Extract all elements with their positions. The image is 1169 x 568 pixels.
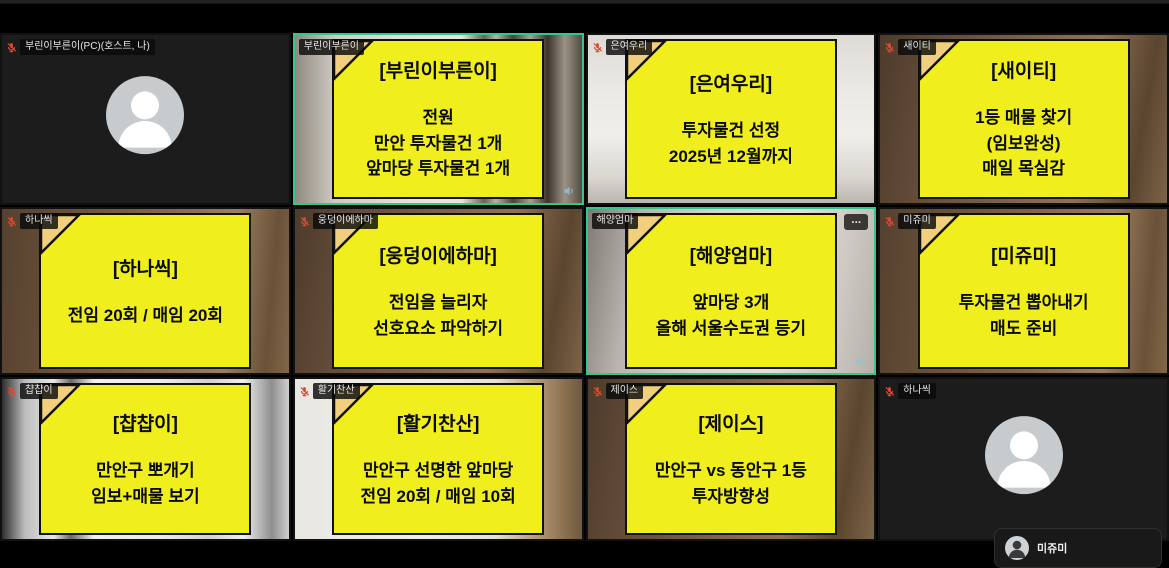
name-label: 챱챱이 (6, 383, 58, 399)
participant-name: 새이티 (898, 39, 936, 55)
note-title: [웅덩이에하마] (379, 241, 497, 268)
participant-tile[interactable]: [부린이부른이] 전원 만안 투자물건 1개 앞마당 투자물건 1개 부린이부른… (293, 33, 584, 205)
avatar (985, 416, 1063, 494)
muted-mic-icon (299, 386, 310, 397)
participant-tile[interactable]: [챱챱이] 만안구 뽀개기 임보+매물 보기 챱챱이 (0, 377, 291, 541)
muted-mic-icon (6, 42, 17, 53)
muted-mic-icon (6, 216, 17, 227)
name-label: 해양엄마 (592, 213, 639, 229)
participant-name: 웅덩이에하마 (313, 213, 378, 229)
avatar (106, 76, 184, 154)
window-top-strip (0, 0, 1169, 4)
muted-mic-icon (592, 386, 603, 397)
participant-name: 챱챱이 (20, 383, 58, 399)
participant-name: 하나씩 (20, 213, 58, 229)
note-title: [하나씩] (113, 254, 178, 281)
participant-tile[interactable]: [해양엄마] 앞마당 3개 올해 서울수도권 등기 해양엄마 ... (586, 207, 877, 375)
note-title: [은여우리] (690, 69, 773, 96)
name-label: 하나씩 (884, 383, 936, 399)
name-label: 부린이부른이(PC)(호스트, 나) (6, 39, 155, 55)
muted-mic-icon (884, 216, 895, 227)
sticky-note: [하나씩] 전임 20회 / 매임 20회 (39, 213, 251, 369)
note-title: [제이스] (698, 409, 763, 436)
participant-tile[interactable]: [활기찬산] 만안구 선명한 앞마당 전임 20회 / 매임 10회 활기찬산 (293, 377, 584, 541)
sticky-note: [활기찬산] 만안구 선명한 앞마당 전임 20회 / 매임 10회 (332, 383, 544, 535)
name-label: 새이티 (884, 39, 936, 55)
speaker-audio-icon (562, 184, 576, 198)
participant-name: 미쥬미 (898, 213, 936, 229)
sticky-note: [은여우리] 투자물건 선정 2025년 12월까지 (625, 39, 837, 199)
participant-tile[interactable]: [하나씩] 전임 20회 / 매임 20회 하나씩 (0, 207, 291, 375)
note-title: [해양엄마] (690, 241, 773, 268)
muted-mic-icon (6, 386, 17, 397)
note-body: 전임을 늘리자 선호요소 파악하기 (373, 290, 503, 341)
participant-tile[interactable]: [은여우리] 투자물건 선정 2025년 12월까지 은여우리 (586, 33, 877, 205)
muted-mic-icon (884, 42, 895, 53)
participant-tile[interactable]: [새이티] 1등 매물 찾기 (임보완성) 매일 목실감 새이티 (878, 33, 1169, 205)
participant-tile[interactable]: [미쥬미] 투자물건 뽑아내기 매도 준비 미쥬미 (878, 207, 1169, 375)
note-body: 앞마당 3개 올해 서울수도권 등기 (656, 290, 806, 341)
note-body: 만안구 뽀개기 임보+매물 보기 (91, 458, 200, 509)
note-body: 만안구 vs 동안구 1등 투자방향성 (655, 458, 807, 509)
floating-participant-card[interactable]: 미쥬미 (994, 528, 1162, 568)
name-label: 웅덩이에하마 (299, 213, 378, 229)
note-title: [새이티] (991, 56, 1056, 83)
muted-mic-icon (592, 42, 603, 53)
note-body: 전원 만안 투자물건 1개 앞마당 투자물건 1개 (366, 105, 510, 182)
note-body: 투자물건 선정 2025년 12월까지 (669, 118, 793, 169)
participant-name: 은여우리 (606, 39, 653, 55)
participant-tile-host[interactable]: 부린이부른이(PC)(호스트, 나) (0, 33, 291, 205)
note-body: 만안구 선명한 앞마당 전임 20회 / 매임 10회 (360, 458, 515, 509)
muted-mic-icon (299, 216, 310, 227)
note-body: 전임 20회 / 매임 20회 (68, 303, 223, 329)
participant-name: 하나씩 (898, 383, 936, 399)
participant-name: 활기찬산 (313, 383, 360, 399)
note-body: 투자물건 뽑아내기 매도 준비 (959, 290, 1089, 341)
note-title: [활기찬산] (397, 409, 480, 436)
sticky-note: [챱챱이] 만안구 뽀개기 임보+매물 보기 (39, 383, 251, 535)
sticky-note: [해양엄마] 앞마당 3개 올해 서울수도권 등기 (625, 213, 837, 369)
participant-name: 미쥬미 (1037, 540, 1067, 556)
name-label: 제이스 (592, 383, 644, 399)
participant-name: 부린이부른이 (299, 39, 364, 55)
sticky-note: [제이스] 만안구 vs 동안구 1등 투자방향성 (625, 383, 837, 535)
video-grid: 부린이부른이(PC)(호스트, 나) [부린이부른이] 전원 만안 투자물건 1… (0, 33, 1169, 541)
more-options-button[interactable]: ... (844, 214, 868, 230)
participant-tile[interactable]: [웅덩이에하마] 전임을 늘리자 선호요소 파악하기 웅덩이에하마 (293, 207, 584, 375)
note-body: 1등 매물 찾기 (임보완성) 매일 목실감 (975, 105, 1072, 182)
participant-name: 제이스 (606, 383, 644, 399)
sticky-note: [새이티] 1등 매물 찾기 (임보완성) 매일 목실감 (918, 39, 1130, 199)
name-label: 은여우리 (592, 39, 653, 55)
name-label: 부린이부른이 (299, 39, 364, 55)
name-label: 활기찬산 (299, 383, 360, 399)
muted-mic-icon (884, 386, 895, 397)
speaker-audio-icon (854, 354, 868, 368)
note-title: [부린이부른이] (379, 56, 497, 83)
participant-name: 부린이부른이(PC)(호스트, 나) (20, 39, 155, 55)
sticky-note: [웅덩이에하마] 전임을 늘리자 선호요소 파악하기 (332, 213, 544, 369)
participant-name: 해양엄마 (592, 213, 639, 229)
participant-tile[interactable]: [제이스] 만안구 vs 동안구 1등 투자방향성 제이스 (586, 377, 877, 541)
name-label: 하나씩 (6, 213, 58, 229)
avatar (1005, 536, 1029, 560)
note-title: [미쥬미] (991, 241, 1056, 268)
name-label: 미쥬미 (884, 213, 936, 229)
sticky-note: [미쥬미] 투자물건 뽑아내기 매도 준비 (918, 213, 1130, 369)
participant-tile[interactable]: 하나씩 (878, 377, 1169, 541)
sticky-note: [부린이부른이] 전원 만안 투자물건 1개 앞마당 투자물건 1개 (332, 39, 544, 199)
note-title: [챱챱이] (113, 409, 178, 436)
